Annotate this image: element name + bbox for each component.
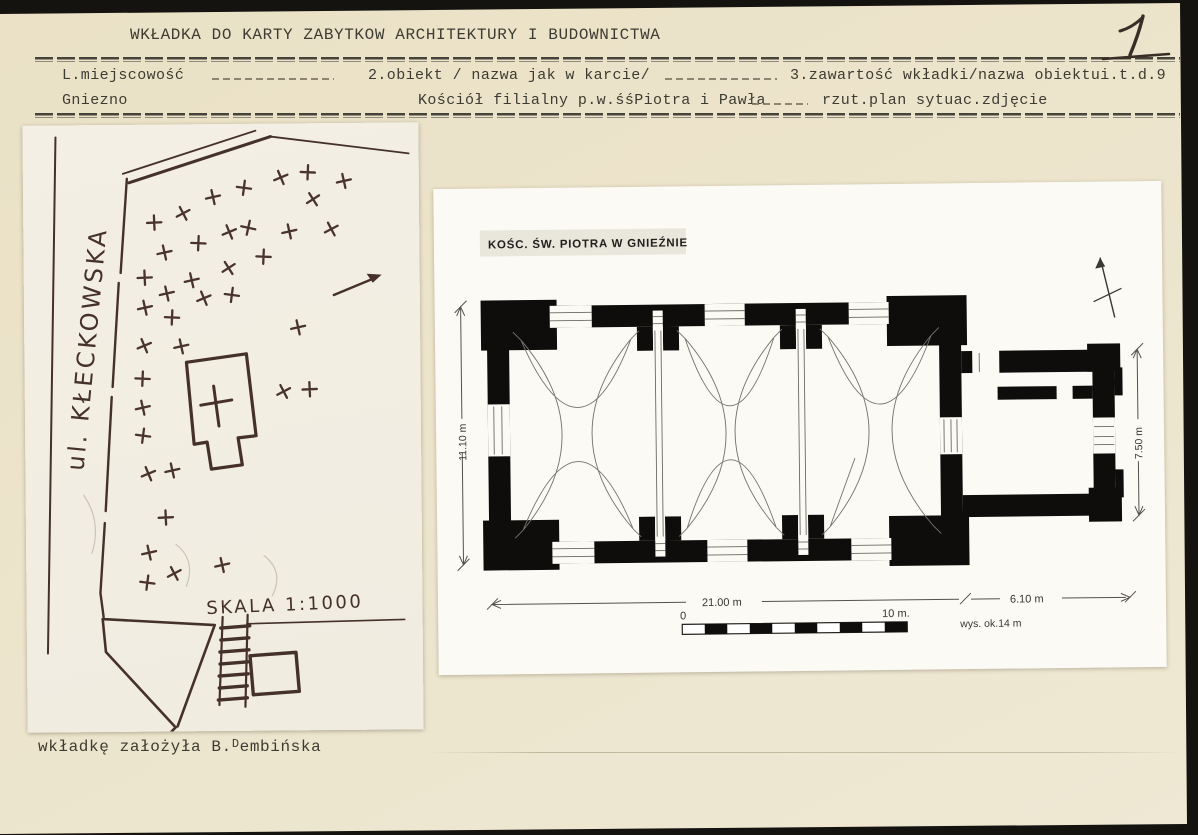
field-value-locality: Gniezno (62, 92, 128, 109)
grave-cross (235, 179, 253, 197)
grave-cross (165, 463, 179, 477)
grave-cross (160, 286, 174, 300)
grave-cross (273, 169, 289, 185)
grave-cross (275, 383, 292, 400)
grave-cross (134, 427, 152, 445)
grave-cross (323, 220, 340, 237)
field-label-locality: L.miejscowość (62, 67, 184, 84)
grave-cross (175, 205, 192, 222)
typed-dashes (665, 78, 777, 80)
small-building-outline (250, 652, 299, 694)
height-note: wys. ok.14 m (959, 617, 1022, 630)
grave-cross (164, 309, 181, 326)
boundary-diagonal-secondary (122, 129, 408, 173)
floor-plan-sheet: KOŚC. ŚW. PIOTRA W GNIEŹNIE (433, 181, 1166, 675)
grave-cross (291, 320, 305, 334)
grave-cross (157, 245, 171, 259)
grave-cross (337, 174, 351, 188)
card-page: WKŁADKA DO KARTY ZABYTKOW ARCHITEKTURY I… (0, 0, 1198, 835)
pencil-traces (84, 494, 277, 598)
plot-wedge-outline (103, 618, 216, 732)
grave-cross (196, 290, 212, 306)
vault-arcs (513, 327, 941, 538)
dim-nave-length: 21.00 m (702, 597, 742, 609)
street-edge-line (43, 137, 60, 653)
scanned-heritage-card: { "header": { "title": "WKŁADKA DO KARTY… (0, 0, 1198, 835)
boundary-diagonal-main (128, 137, 270, 183)
paper-crease (428, 752, 1182, 753)
church-outline (186, 354, 256, 470)
footer-suffix: embińska (240, 738, 322, 756)
grave-cross (174, 339, 188, 353)
dim-chancel-width: 7.50 m (1133, 427, 1145, 459)
typed-dashes (752, 103, 808, 105)
grave-crosses (132, 163, 355, 591)
footer-superscript: D (232, 737, 240, 751)
site-sketch-photo: ul. KŁECKOWSKA SKALA 1:1000 (22, 122, 423, 732)
card-title: WKŁADKA DO KARTY ZABYTKOW ARCHITEKTURY I… (130, 26, 660, 44)
grave-cross (137, 270, 153, 286)
church-cross (201, 386, 232, 426)
grave-cross (158, 509, 174, 525)
grave-cross (282, 224, 296, 238)
scale-ten-label: 10 m. (882, 608, 910, 620)
grave-cross (215, 558, 229, 572)
typed-rule-top (35, 57, 1180, 62)
road-line (247, 619, 405, 623)
sketch-north-arrow (334, 278, 376, 295)
plan-title: KOŚC. ŚW. PIOTRA W GNIEŹNIE (488, 236, 688, 251)
grave-cross (138, 574, 156, 592)
scale-zero-label: 0 (680, 610, 686, 622)
grave-cross (221, 224, 237, 240)
field-value-contents: rzut.plan sytuac.zdjęcie (822, 92, 1048, 109)
sketch-scale-label: SKALA 1:1000 (206, 591, 364, 619)
grave-cross (220, 259, 238, 277)
page-number-mark: 1 (1095, 10, 1180, 62)
grave-cross (138, 301, 152, 315)
grave-cross (239, 218, 258, 237)
grave-cross (134, 370, 151, 387)
field-value-object: Kościół filialny p.w.śśPiotra i Pawła (418, 92, 766, 109)
grave-cross (136, 401, 150, 415)
grave-cross (166, 565, 183, 582)
floor-plan-drawing: KOŚC. ŚW. PIOTRA W GNIEŹNIE (433, 181, 1166, 675)
grave-cross (223, 286, 241, 304)
grave-cross (190, 235, 207, 252)
grave-cross (299, 164, 316, 181)
dim-chancel-length: 6.10 m (1010, 593, 1044, 605)
grave-cross (146, 215, 162, 231)
typed-rule-bottom (35, 113, 1180, 118)
grave-cross (304, 190, 322, 208)
typed-dashes (212, 78, 334, 80)
grave-cross (185, 273, 199, 287)
plan-north-arrow-icon (1093, 257, 1122, 317)
grave-cross (142, 546, 156, 560)
site-sketch-drawing: ul. KŁECKOWSKA SKALA 1:1000 (22, 122, 423, 732)
plan-openings (487, 299, 1117, 564)
footer-note: wkładkę założyła B.Dembińska (38, 737, 321, 756)
grave-cross (140, 465, 156, 481)
field-label-contents: 3.zawartość wkładki/nazwa obiektui.t.d.9 (790, 67, 1166, 84)
grave-cross (206, 190, 220, 204)
field-label-object: 2.obiekt / nazwa jak w karcie/ (368, 67, 650, 84)
footer-prefix: wkładkę założyła B. (38, 738, 232, 756)
street-name-label: ul. KŁECKOWSKA (61, 226, 112, 472)
grave-cross (255, 248, 272, 265)
grave-cross (302, 381, 318, 397)
dim-nave-width: 11.10 m (457, 423, 469, 461)
scale-bar: 0 10 m. (680, 608, 910, 635)
grave-cross (136, 338, 152, 354)
